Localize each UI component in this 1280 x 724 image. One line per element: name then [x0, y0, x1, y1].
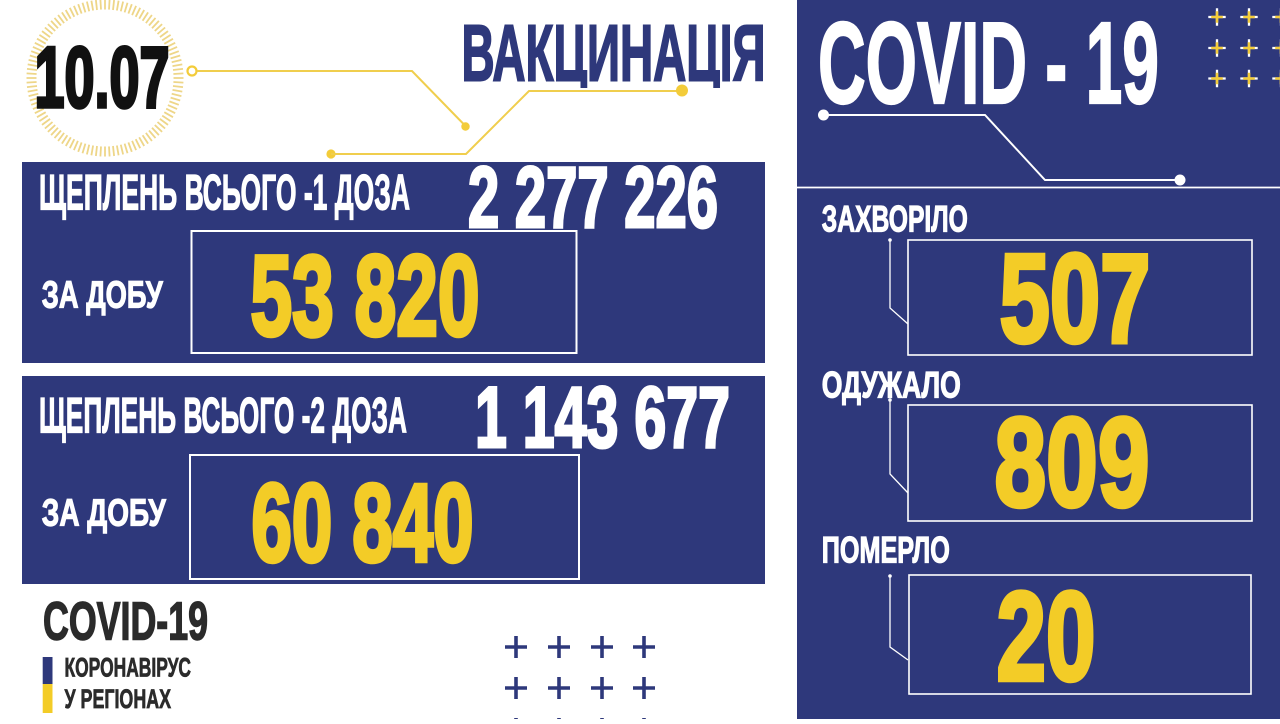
svg-text:ЗАХВОРІЛО: ЗАХВОРІЛО — [822, 199, 968, 240]
svg-text:2 277 226: 2 277 226 — [468, 150, 718, 246]
svg-text:809: 809 — [995, 392, 1150, 533]
svg-text:ЩЕПЛЕНЬ ВСЬОГО -1 ДОЗА: ЩЕПЛЕНЬ ВСЬОГО -1 ДОЗА — [39, 165, 410, 221]
svg-text:ВАКЦИНАЦІЯ: ВАКЦИНАЦІЯ — [462, 9, 766, 98]
svg-text:COVID-19: COVID-19 — [43, 592, 208, 652]
svg-text:60 840: 60 840 — [252, 462, 474, 585]
svg-text:COVID - 19: COVID - 19 — [818, 0, 1159, 128]
svg-text:1 143 677: 1 143 677 — [475, 370, 730, 466]
svg-text:ЗА ДОБУ: ЗА ДОБУ — [42, 493, 166, 535]
svg-text:ЗА ДОБУ: ЗА ДОБУ — [42, 275, 163, 317]
svg-text:20: 20 — [997, 566, 1096, 707]
svg-text:10.07: 10.07 — [35, 30, 170, 126]
svg-text:53 820: 53 820 — [251, 233, 480, 360]
svg-text:ЩЕПЛЕНЬ ВСЬОГО -2 ДОЗА: ЩЕПЛЕНЬ ВСЬОГО -2 ДОЗА — [39, 388, 407, 444]
svg-text:У РЕГІОНАХ: У РЕГІОНАХ — [65, 684, 172, 714]
svg-text:507: 507 — [1000, 228, 1151, 369]
svg-text:ОДУЖАЛО: ОДУЖАЛО — [822, 365, 961, 406]
svg-text:КОРОНАВІРУС: КОРОНАВІРУС — [65, 653, 192, 683]
svg-text:ПОМЕРЛО: ПОМЕРЛО — [822, 530, 950, 571]
